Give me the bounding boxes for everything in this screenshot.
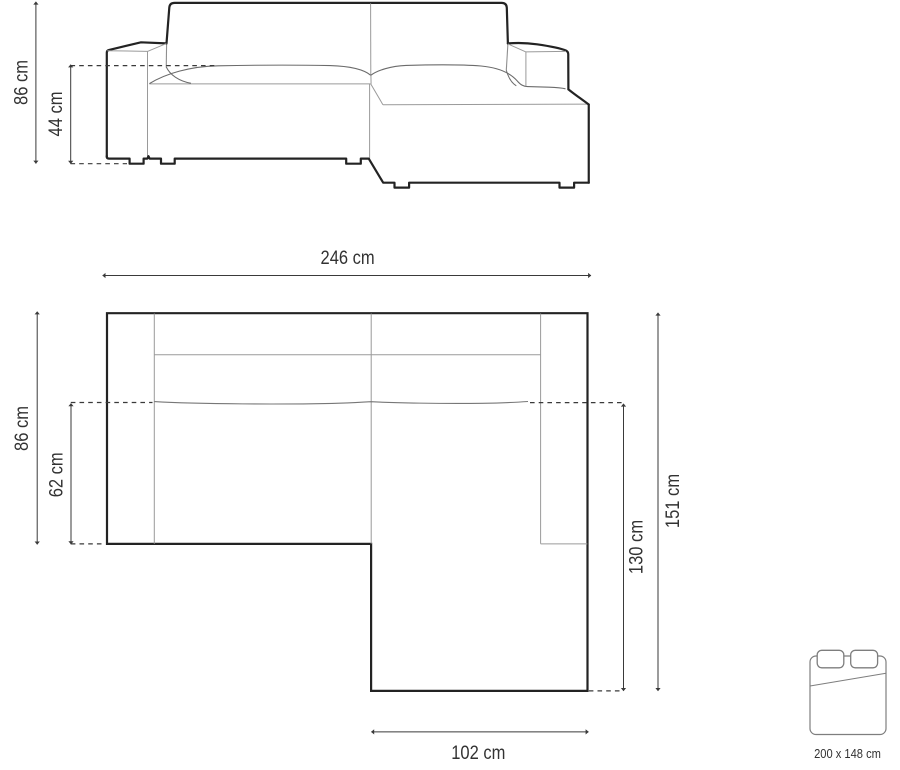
svg-text:62 cm: 62 cm — [45, 452, 66, 497]
svg-text:86 cm: 86 cm — [11, 406, 32, 451]
svg-text:44 cm: 44 cm — [45, 92, 66, 137]
svg-text:246 cm: 246 cm — [321, 247, 375, 268]
svg-text:200 x 148 cm: 200 x 148 cm — [814, 746, 881, 761]
svg-text:130 cm: 130 cm — [625, 520, 646, 574]
svg-text:151 cm: 151 cm — [662, 474, 683, 528]
svg-text:102 cm: 102 cm — [451, 742, 505, 763]
svg-text:86 cm: 86 cm — [10, 60, 31, 105]
